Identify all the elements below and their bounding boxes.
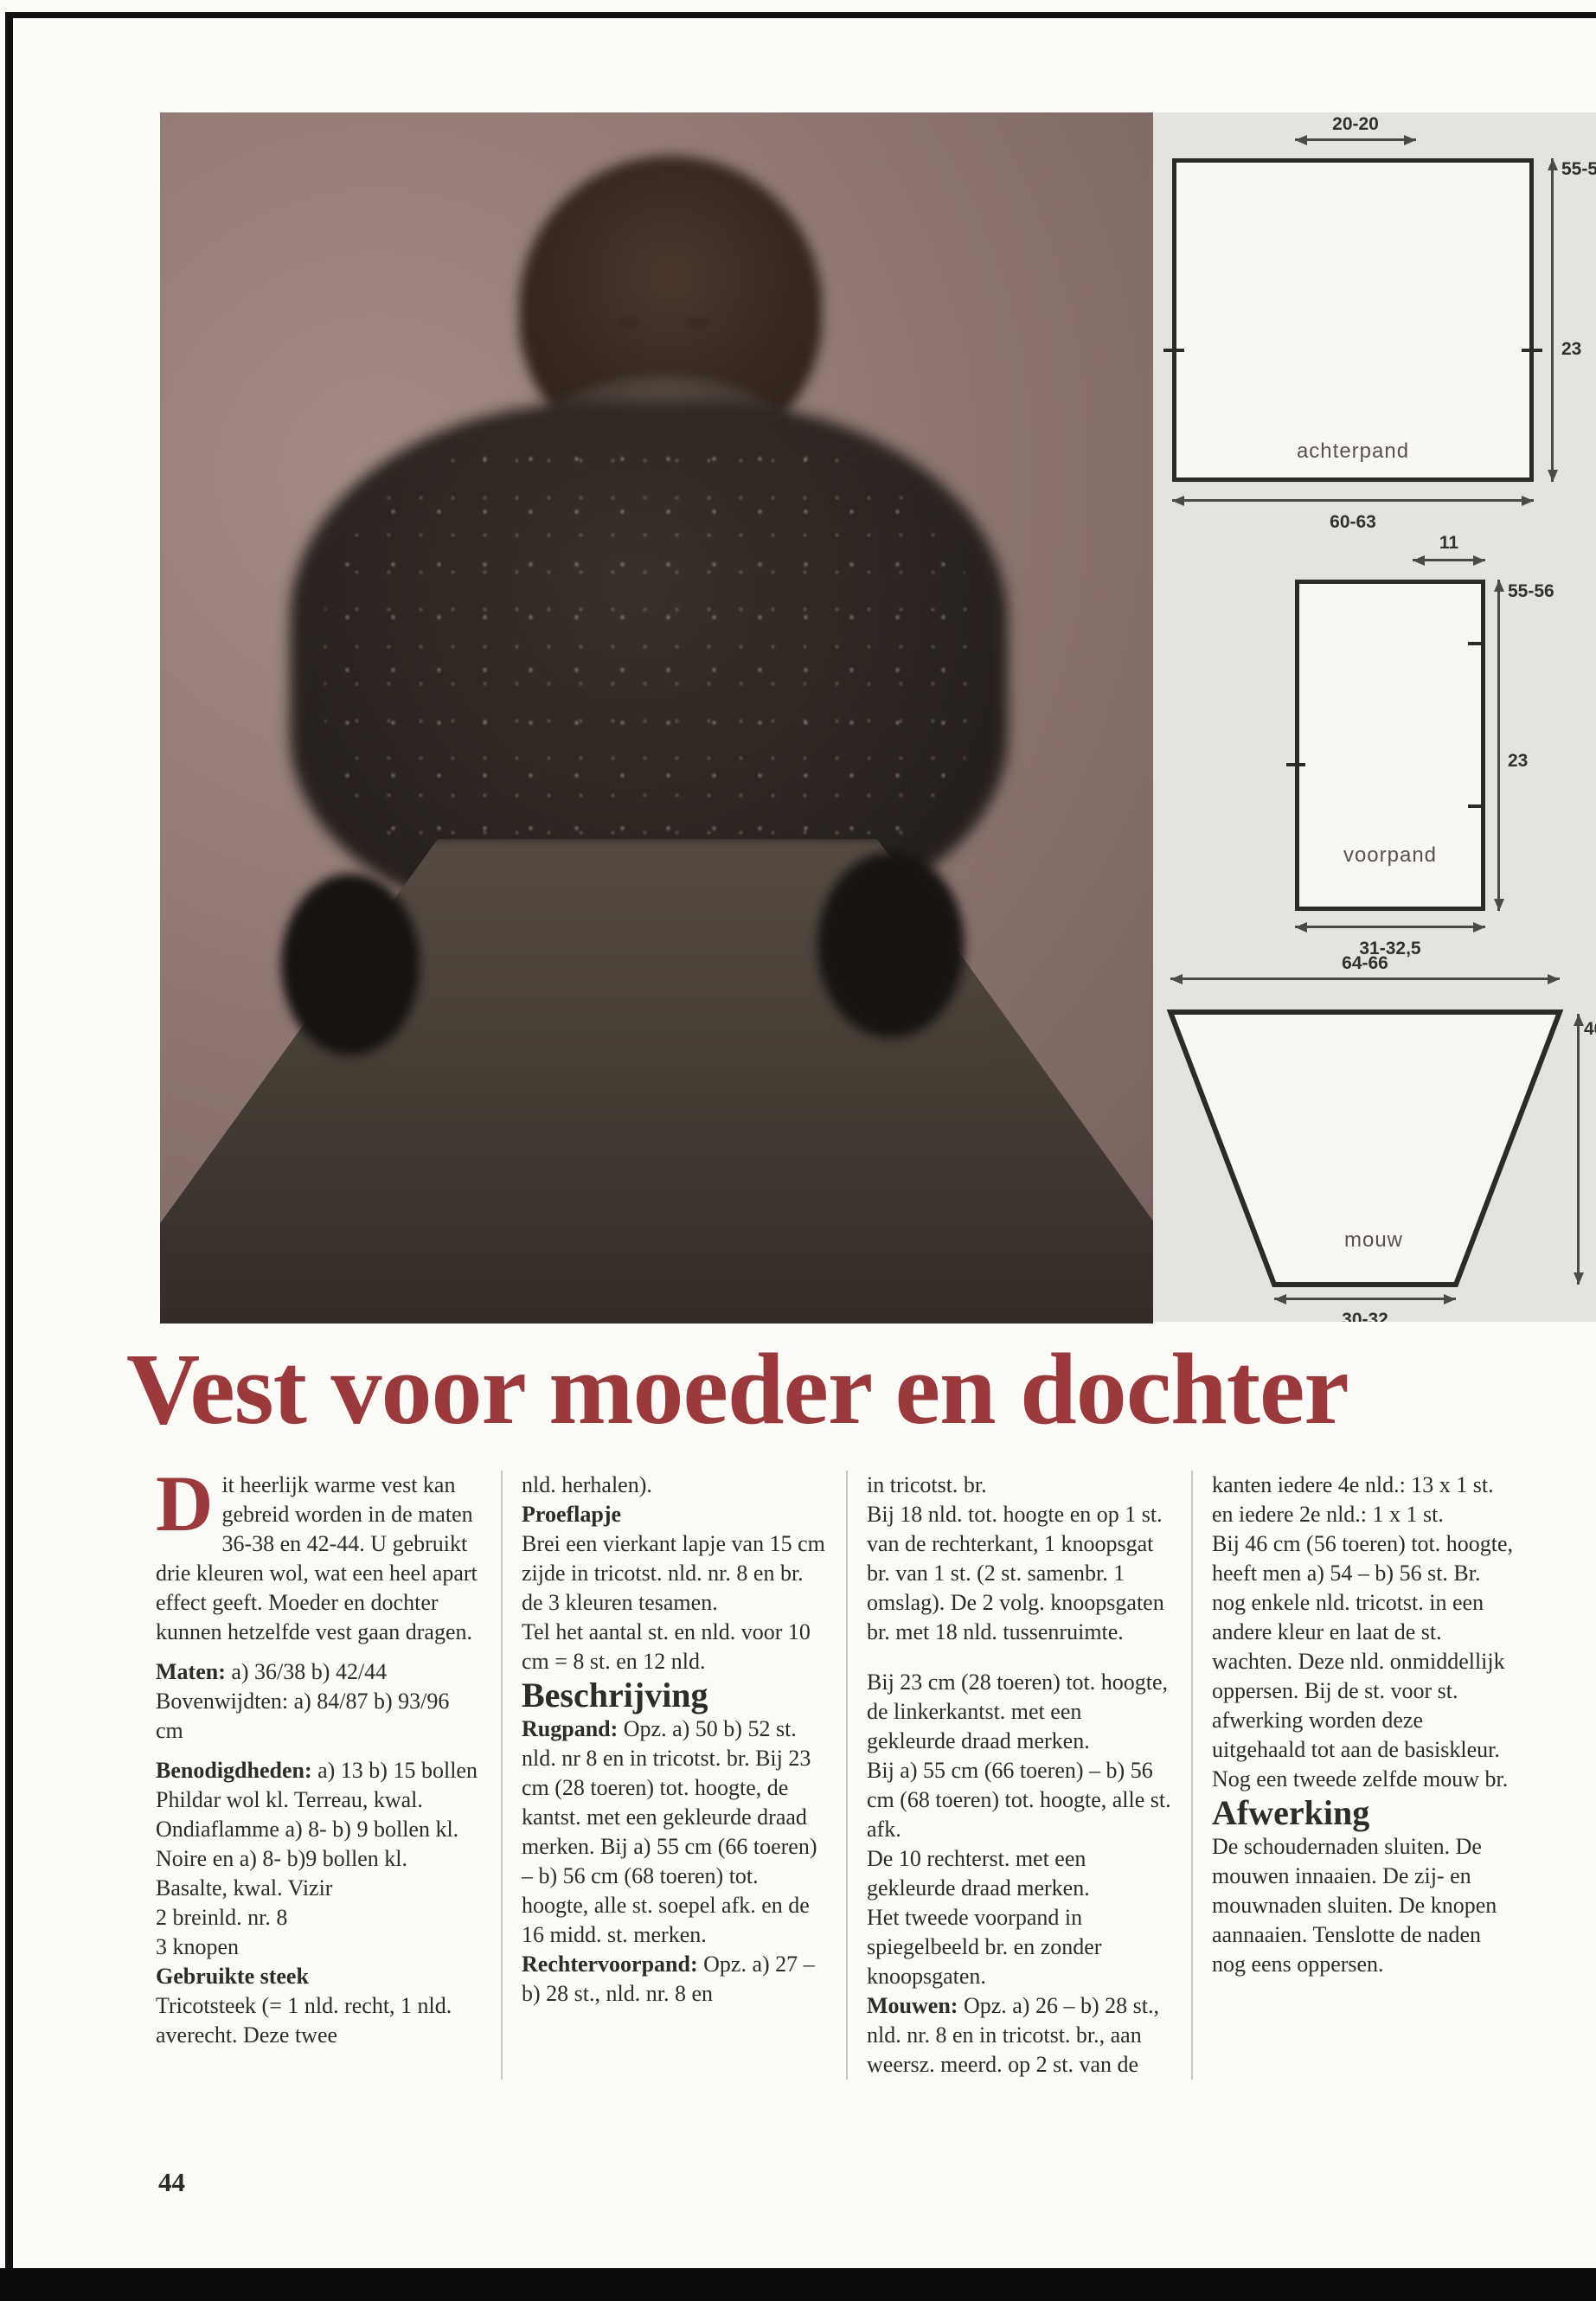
achterpand-right-dim-line — [1551, 158, 1554, 482]
page-border-top — [5, 12, 1596, 18]
page-border-left — [5, 12, 13, 2268]
proeflapje-paragraph-2: Tel het aantal st. en nld. voor 10 cm = … — [522, 1618, 827, 1676]
beschrijving-heading: Beschrijving — [522, 1676, 827, 1715]
rugpand-paragraph: Rugpand: Opz. a) 50 b) 52 st. nld. nr 8 … — [522, 1715, 827, 1950]
sweater-sparkle-texture — [324, 433, 973, 900]
achterpand-armhole-tick-left — [1163, 349, 1184, 352]
col4-paragraph-1: kanten iedere 4e nld.: 13 x 1 st. en ied… — [1212, 1471, 1517, 1529]
achterpand-bottom-dim-line — [1172, 499, 1534, 502]
afwerking-heading: Afwerking — [1212, 1794, 1517, 1832]
voorpand-top-dim-line — [1413, 559, 1485, 561]
col3-paragraph-2: Bij 18 nld. tot. hoogte en op 1 st. van … — [867, 1500, 1172, 1647]
model-photo — [160, 112, 1153, 1324]
col3-paragraph-5: De 10 rechterst. met een gekleurde draad… — [867, 1844, 1172, 1903]
gebruikte-steek-heading: Gebruikte steek — [156, 1962, 482, 1991]
col3-paragraph-1: in tricotst. br. — [867, 1471, 1172, 1500]
mouw-bottom-dim-line — [1274, 1298, 1456, 1300]
col3-paragraph-3: Bij 23 cm (28 toeren) tot. hoogte, de li… — [867, 1668, 1172, 1756]
rechtervoorpand-paragraph: Rechtervoorpand: Opz. a) 27 – b) 28 st.,… — [522, 1950, 827, 2009]
column-3: in tricotst. br. Bij 18 nld. tot. hoogte… — [846, 1471, 1191, 2080]
benodigdheden-label: Benodigdheden: — [156, 1758, 312, 1783]
model-eye-left — [617, 318, 639, 327]
naalden-line: 2 breinld. nr. 8 — [156, 1903, 482, 1932]
voorpand-armhole-tick-left — [1286, 763, 1305, 766]
achterpand-top-dim-line — [1295, 138, 1416, 141]
mouw-right-dim-line — [1577, 1014, 1580, 1285]
voorpand-height-label: 55-56 — [1508, 581, 1554, 602]
voorpand-top-dim-label: 11 — [1413, 533, 1485, 554]
col3-paragraph-6: Het tweede voorpand in spiegelbeeld br. … — [867, 1903, 1172, 1991]
steek-paragraph: Tricotsteek (= 1 nld. recht, 1 nld. aver… — [156, 1991, 482, 2050]
model-eye-right — [686, 318, 708, 327]
col4-paragraph-3: Nog een tweede zelfde mouw br. — [1212, 1765, 1517, 1794]
proeflapje-paragraph-1: Brei een vierkant lapje van 15 cm zijde … — [522, 1529, 827, 1618]
mouw-bottom-dim-label: 30-32 — [1274, 1310, 1456, 1322]
voorpand-armhole-label: 23 — [1508, 751, 1528, 772]
page-title: Vest voor moeder en dochter — [126, 1330, 1580, 1448]
afwerking-paragraph: De schoudernaden sluiten. De mouwen inna… — [1212, 1832, 1517, 1979]
mouw-top-dim-line — [1170, 977, 1560, 980]
mouw-label: mouw — [1274, 1228, 1473, 1253]
voorpand-buttonhole-tick-2 — [1468, 804, 1482, 808]
achterpand-bottom-dim-label: 60-63 — [1172, 512, 1534, 533]
page-number: 44 — [158, 2167, 185, 2198]
maten-label: Maten: — [156, 1659, 226, 1684]
glove-right — [817, 852, 965, 1038]
continuation-line: nld. herhalen). — [522, 1471, 827, 1500]
maten-paragraph: Maten: a) 36/38 b) 42/44 Bovenwijdten: a… — [156, 1657, 482, 1746]
knopen-line: 3 knopen — [156, 1932, 482, 1962]
col4-paragraph-2: Bij 46 cm (56 toeren) tot. hoogte, heeft… — [1212, 1529, 1517, 1765]
col3-paragraph-4: Bij a) 55 cm (66 toeren) – b) 56 cm (68 … — [867, 1756, 1172, 1844]
achterpand-label: achterpand — [1172, 439, 1534, 464]
column-4: kanten iedere 4e nld.: 13 x 1 st. en ied… — [1191, 1471, 1536, 2080]
voorpand-right-dim-line — [1497, 580, 1500, 911]
proeflapje-heading: Proeflapje — [522, 1500, 827, 1529]
benodigdheden-paragraph: Benodigdheden: a) 13 b) 15 bollen Philda… — [156, 1756, 482, 1903]
achterpand-height-label: 55-56 — [1561, 159, 1596, 180]
pattern-diagram-panel: 20-20 55-56 23 achterpand 60-63 11 55-56… — [1153, 112, 1596, 1322]
magazine-page: 20-20 55-56 23 achterpand 60-63 11 55-56… — [0, 0, 1596, 2301]
achterpand-rect — [1172, 158, 1534, 482]
mouw-top-dim-label: 64-66 — [1300, 953, 1430, 974]
voorpand-label: voorpand — [1295, 843, 1485, 868]
voorpand-bottom-dim-line — [1295, 926, 1485, 928]
mouw-height-label: 46 — [1584, 1019, 1596, 1040]
mouw-shape — [1153, 986, 1596, 1315]
dropcap-d: D — [156, 1472, 213, 1535]
intro-paragraph: Dit heerlijk warme vest kan gebreid word… — [156, 1471, 482, 1647]
glove-left — [281, 874, 420, 1055]
column-1: Dit heerlijk warme vest kan gebreid word… — [156, 1471, 501, 2080]
mouwen-label: Mouwen: — [867, 1993, 958, 2018]
article-columns: Dit heerlijk warme vest kan gebreid word… — [156, 1471, 1536, 2080]
achterpand-top-dim-label: 20-20 — [1295, 114, 1416, 135]
page-border-bottom — [0, 2268, 1596, 2301]
voorpand-buttonhole-tick-1 — [1468, 642, 1482, 645]
rugpand-label: Rugpand: — [522, 1716, 618, 1741]
achterpand-armhole-label: 23 — [1561, 339, 1581, 360]
column-2: nld. herhalen). Proeflapje Brei een vier… — [501, 1471, 846, 2080]
achterpand-armhole-tick-right — [1522, 349, 1542, 352]
mouwen-paragraph: Mouwen: Opz. a) 26 – b) 28 st., nld. nr.… — [867, 1991, 1172, 2080]
rechtervoorpand-label: Rechtervoorpand: — [522, 1952, 698, 1977]
